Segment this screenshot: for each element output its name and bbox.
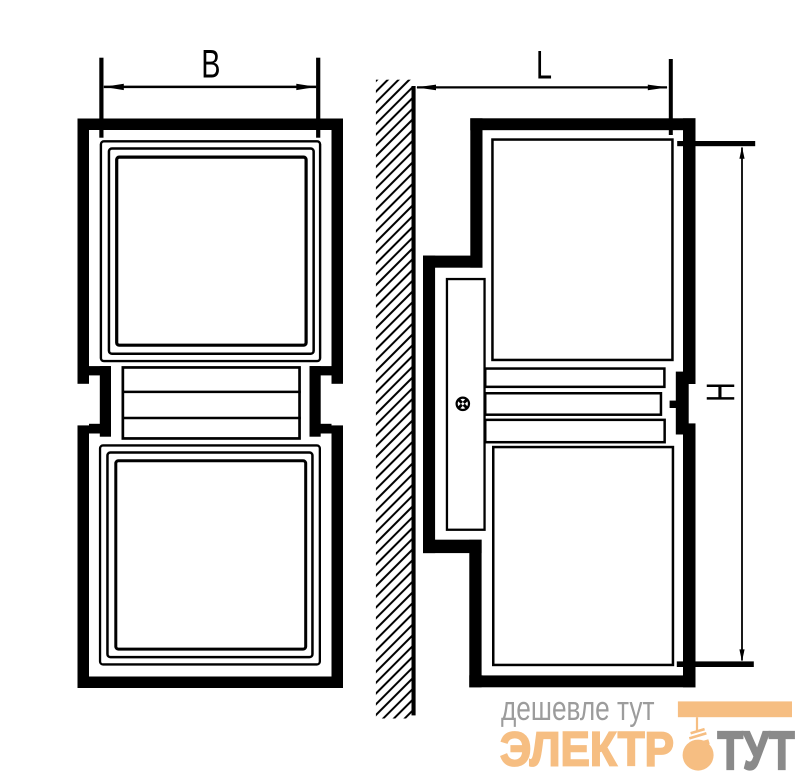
svg-text:L: L — [536, 43, 552, 88]
svg-text:ЭЛЕКТР: ЭЛЕКТР — [500, 724, 674, 771]
svg-text:B: B — [201, 42, 220, 87]
svg-text:H: H — [699, 382, 743, 402]
svg-text:ТУТ: ТУТ — [718, 722, 795, 771]
svg-text:дешевле тут: дешевле тут — [501, 690, 655, 728]
